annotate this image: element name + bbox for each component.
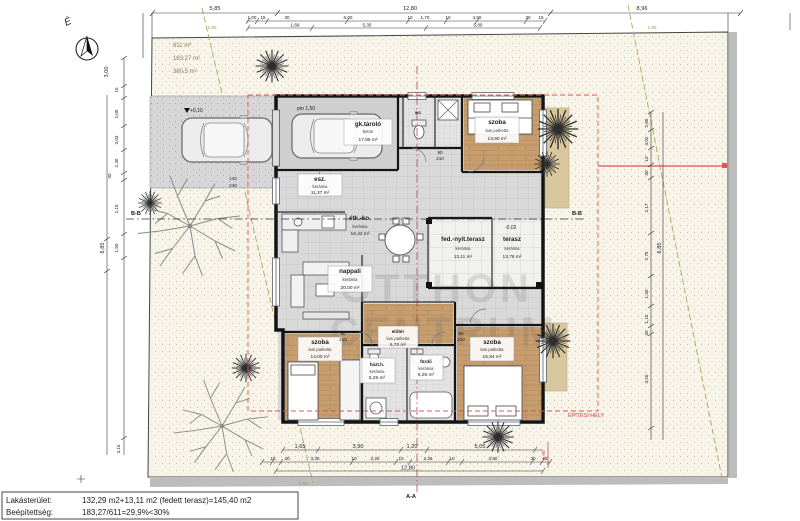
dim-bottom1-3: 5,05: [475, 444, 486, 450]
dim-top2-0: 1,00: [248, 15, 257, 20]
dim-left-8: 6,85: [100, 243, 106, 254]
dim-bottom2-2: 3,30: [311, 456, 320, 461]
site-area-3: 380,5 m²: [173, 69, 197, 75]
car-driveway-icon: [182, 116, 272, 165]
dim-left-1: 15: [114, 87, 119, 93]
dim-left-3: 3,03: [114, 135, 119, 144]
info-row1-label: Lakásterület:: [6, 496, 52, 505]
site-area-2: 183,27 m²: [173, 56, 200, 62]
dim-top2-8: 30: [525, 15, 531, 20]
bush-tree-icon: [256, 50, 289, 83]
room-area-bedroom-tr: 13,90 m²: [488, 136, 507, 142]
dim-bottom2-6: 2,25: [424, 456, 433, 461]
dim-bottom2-7: 10: [449, 456, 455, 461]
room-area-covered-terrace: 13,11 m²: [454, 254, 473, 260]
room-floor-bedroom-tr: lam.parketta: [485, 128, 509, 133]
room-floor-living: kerámia: [343, 277, 359, 282]
room-floor-garage: beton: [363, 129, 374, 134]
room-name-esz: esz.: [314, 176, 326, 183]
level-driveway: +0,10: [190, 108, 203, 114]
bush-tree-icon: [538, 109, 579, 150]
room-area-terrace: 13,76 m²: [503, 254, 522, 260]
info-row2-label: Beépítettség:: [6, 508, 53, 517]
room-floor-utility: kerámia: [370, 369, 386, 374]
room-area-utility: 5,25 m²: [369, 375, 386, 381]
opening-height: 210: [457, 337, 465, 342]
terrace-column: [536, 282, 542, 288]
bed-bottom-right-icon: [464, 366, 522, 420]
dim-right-10: 4,20: [644, 374, 649, 383]
room-floor-bedroom-br: lam.parketta: [480, 347, 504, 352]
dim-bottom2-4: 2,25: [371, 456, 380, 461]
boundary-dim-top-right: 1,90: [648, 25, 657, 30]
room-name-garage: gk.tároló: [355, 121, 381, 128]
dim-top2-3: 6,00: [344, 15, 353, 20]
opening-width: 90: [437, 150, 443, 155]
opening-height-240: 240: [229, 183, 237, 188]
red-setback-marker: [722, 163, 727, 168]
opening-height: 210: [339, 337, 347, 342]
room-name-bedroom-tr: szoba: [488, 119, 506, 126]
bush-tree-icon: [482, 421, 514, 453]
room-name-utility: házt.h.: [370, 362, 385, 367]
dim-top3-2: 5,80: [474, 23, 483, 28]
dim-bottom2-9: 30: [530, 456, 536, 461]
room-name-bedroom-br: szoba: [483, 339, 501, 346]
room-name-terrace: terasz: [503, 236, 521, 243]
info-row2-value: 183,27/611=29,9%<30%: [82, 508, 169, 517]
room-name-bedroom-bl: szoba: [311, 339, 329, 346]
parapet-label: pm 1,50: [297, 106, 315, 112]
dim-right-5: 2,70: [644, 251, 649, 260]
dim-right-9: 30: [644, 330, 649, 336]
dim-top2-2: 30: [284, 15, 290, 20]
garage-door: [273, 110, 280, 166]
room-floor-bedroom-bl: lam.parketta: [308, 347, 332, 352]
dim-bottom1-1: 3,90: [353, 444, 364, 450]
dim-top2-1: 15: [260, 15, 266, 20]
dim-right-2: 10: [644, 156, 649, 162]
dim-top2-4: 10: [407, 15, 413, 20]
site-plan-drawing: OTTHON CENTRUM ÉPÍTÉSI HELY B-B B-B A-A …: [0, 0, 800, 521]
dim-left-7: 1,50: [114, 243, 119, 252]
opening-width: 90: [458, 331, 464, 336]
level-terrace: -0,02: [505, 225, 517, 231]
room-floor-bathroom: kerámia: [419, 366, 435, 371]
info-row1-value: 132,29 m2+13,11 m2 (fedett terasz)=145,4…: [82, 496, 252, 505]
dim-left-2: 2,05: [114, 109, 119, 118]
dim-bottom2-5: 10: [398, 456, 404, 461]
room-floor-kitchen: kerámia: [353, 224, 369, 229]
dim-right-8: 1,10: [644, 314, 649, 323]
north-label: É: [62, 14, 74, 29]
dim-right-0: 2,60: [644, 118, 649, 127]
room-area-living: 20,00 m²: [341, 285, 360, 291]
dim-bottom1-2: 1,20: [407, 444, 418, 450]
dim-top2-7: 4,00: [473, 15, 482, 20]
room-name-bathroom: fürdő: [420, 359, 432, 364]
room-name-wc: wc: [414, 110, 422, 115]
dim-bottom2-1: 30: [284, 456, 290, 461]
dim-right-3: 30: [644, 170, 649, 176]
dim-top3-0: 1,68: [291, 23, 300, 28]
boundary-dim-top-left: 1,90: [208, 25, 217, 30]
dim-bottom2-0: 15: [270, 456, 276, 461]
room-name-kitchen: étk.-ko.: [349, 215, 371, 222]
room-area-bedroom-bl: 14,00 m²: [311, 354, 330, 360]
dim-top1-0: 5,85: [210, 6, 221, 12]
dim-left-0: 3,00: [104, 67, 110, 78]
section-label-aa: A-A: [406, 494, 416, 500]
dim-top3-1: 5,35: [363, 23, 372, 28]
bush-tree-icon: [536, 324, 571, 359]
dim-bottom1-0: 1,65: [295, 444, 306, 450]
opening-width: 90: [340, 331, 346, 336]
dim-left-9: 3,15: [116, 444, 121, 453]
dim-left-4: 2,40: [114, 158, 119, 167]
bush-tree-icon: [534, 151, 560, 177]
room-area-kitchen: 16,42 m²: [351, 231, 370, 237]
room-floor-terrace: kerámia: [505, 246, 521, 251]
room-area-esz: 11,37 m²: [311, 190, 330, 196]
info-box: Lakásterület: 132,29 m2+13,11 m2 (fedett…: [2, 492, 298, 519]
room-area-bathroom: 6,25 m²: [418, 372, 435, 378]
boundary-dim-bottom: 1,90: [299, 481, 308, 486]
room-area-garage: 17,85 m²: [359, 137, 378, 143]
dim-bottom2-3: 10: [351, 456, 357, 461]
dim-bottom-total: 12,80: [401, 466, 415, 472]
room-name-foyer: előtér: [392, 329, 405, 334]
dim-bottom2-8: 3,80: [489, 456, 498, 461]
terrace-column: [426, 282, 432, 288]
room-floor-foyer: lam.parketta: [386, 336, 410, 341]
dim-top2-9: 15: [538, 15, 544, 20]
right-road-band: [729, 32, 737, 478]
bush-tree-icon: [232, 354, 261, 383]
floor-plan-canvas: OTTHON CENTRUM ÉPÍTÉSI HELY B-B B-B A-A …: [0, 0, 800, 521]
dim-top1-2: 8,96: [637, 6, 648, 12]
dim-left-5: 30: [107, 173, 112, 179]
room-area-foyer: 6,70 m²: [390, 342, 407, 348]
dim-right-7: 1,30: [644, 289, 649, 298]
opening-height: 210: [436, 156, 444, 161]
room-name-living: nappali: [339, 268, 361, 275]
red-setback-dim: 1,90: [541, 450, 546, 459]
room-floor-covered-terrace: kerámia: [456, 246, 472, 251]
building-envelope-label: ÉPÍTÉSI HELY: [568, 412, 604, 419]
dim-right-1: 3,02: [644, 136, 649, 145]
north-arrow-icon: [76, 36, 98, 60]
dim-top2-5: 1,70: [421, 15, 430, 20]
room-floor-esz: kerámia: [313, 184, 329, 189]
opening-width-140: 140: [229, 176, 237, 181]
dim-right-4: 2,17: [644, 203, 649, 212]
bottom-road-band: [150, 477, 728, 487]
site-area-1: 611 m²: [173, 43, 191, 49]
dim-right-6: 6,85: [657, 243, 663, 254]
section-label-bb-right: B-B: [572, 211, 582, 217]
section-label-bb-left: B-B: [131, 211, 141, 217]
dim-top1-1: 12,80: [403, 6, 417, 12]
room-area-bedroom-br: 15,84 m²: [483, 354, 502, 360]
room-name-covered-terrace: fed.-nyit.terasz: [441, 236, 485, 243]
dim-left-6: 2,15: [114, 204, 119, 213]
dim-top2-6: 10: [445, 15, 451, 20]
